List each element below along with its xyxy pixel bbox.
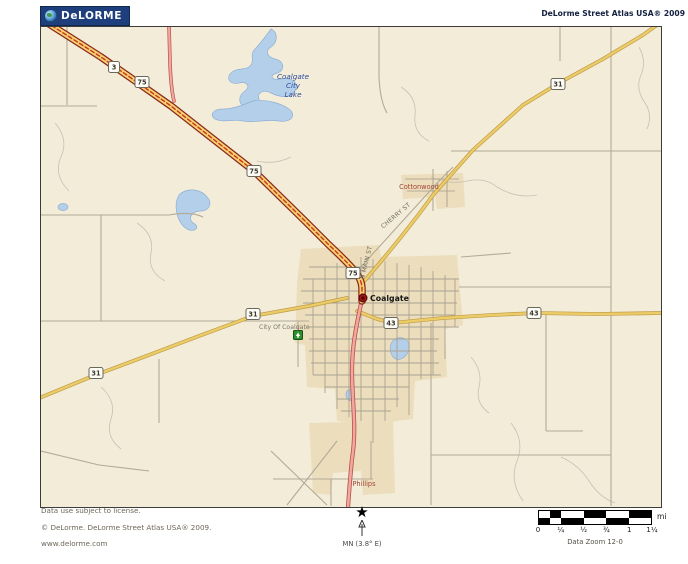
lake-label-line3: Lake: [285, 90, 303, 99]
scale-tick: ¼: [557, 526, 564, 534]
svg-text:43: 43: [529, 310, 539, 318]
route-shield-us75-b: 75: [247, 166, 261, 177]
lake-label-line2: City: [286, 81, 301, 90]
city-park-icon: [294, 331, 303, 340]
scale-tick: 1¼: [646, 526, 657, 534]
scale-unit-label: mi: [657, 510, 667, 523]
scale-ticks: 0 ¼ ½ ¾ 1 1¼: [538, 526, 652, 536]
north-star-icon: ★: [355, 505, 368, 520]
route-shield-ok43-a: 43: [384, 318, 398, 329]
svg-text:75: 75: [348, 270, 358, 278]
app-title: DeLorme Street Atlas USA® 2009: [541, 9, 685, 18]
svg-text:75: 75: [249, 168, 259, 176]
svg-text:75: 75: [137, 79, 147, 87]
copyright-text: © DeLorme. DeLorme Street Atlas USA® 200…: [41, 524, 211, 532]
svg-text:43: 43: [386, 320, 396, 328]
scale-tick: 0: [536, 526, 540, 534]
scale-tick: ½: [580, 526, 587, 534]
route-shield-ok31-a: 31: [551, 79, 565, 90]
poi-label-city-of-coalgate: City Of Coalgate: [259, 324, 310, 331]
route-shield-us75-c: 75: [346, 268, 360, 279]
scale-bar: [538, 510, 652, 525]
coalgate-town-marker: [359, 294, 367, 302]
route-shield-us75-a: 75: [135, 77, 149, 88]
svg-text:31: 31: [91, 370, 101, 378]
route-shield-ok31-c: 31: [89, 368, 103, 379]
magnetic-north-label: MN (3.8° E): [322, 540, 402, 548]
svg-text:31: 31: [248, 311, 258, 319]
north-arrow-icon: [357, 520, 367, 536]
delorme-logo: DeLORME: [40, 6, 130, 26]
town-label-coalgate: Coalgate: [370, 294, 409, 303]
map-viewport[interactable]: 3 75 75 75 31: [40, 26, 662, 508]
svg-text:31: 31: [553, 81, 563, 89]
license-text: Data use subject to license.: [41, 507, 141, 515]
scale-bar-group: mi 0 ¼ ½ ¾ 1 1¼ Data Zoom 12-0: [538, 510, 678, 546]
page: DeLORME DeLorme Street Atlas USA® 2009: [0, 0, 688, 564]
north-indicator: ★: [342, 505, 382, 536]
svg-text:3: 3: [112, 64, 117, 72]
data-zoom-label: Data Zoom 12-0: [538, 538, 652, 546]
town-label-cottonwood: Cottonwood: [399, 183, 439, 191]
town-label-phillips: Phillips: [352, 480, 376, 488]
route-shield-ok31-b: 31: [246, 309, 260, 320]
scale-tick: 1: [627, 526, 631, 534]
website-text: www.delorme.com: [41, 540, 108, 548]
logo-text: DeLORME: [61, 11, 122, 22]
route-shield-ok3: 3: [109, 62, 120, 73]
map-svg[interactable]: 3 75 75 75 31: [41, 27, 661, 507]
globe-icon: [45, 10, 57, 22]
scale-tick: ¾: [603, 526, 610, 534]
route-shield-ok43-b: 43: [527, 308, 541, 319]
lake-label-line1: Coalgate: [277, 72, 310, 81]
